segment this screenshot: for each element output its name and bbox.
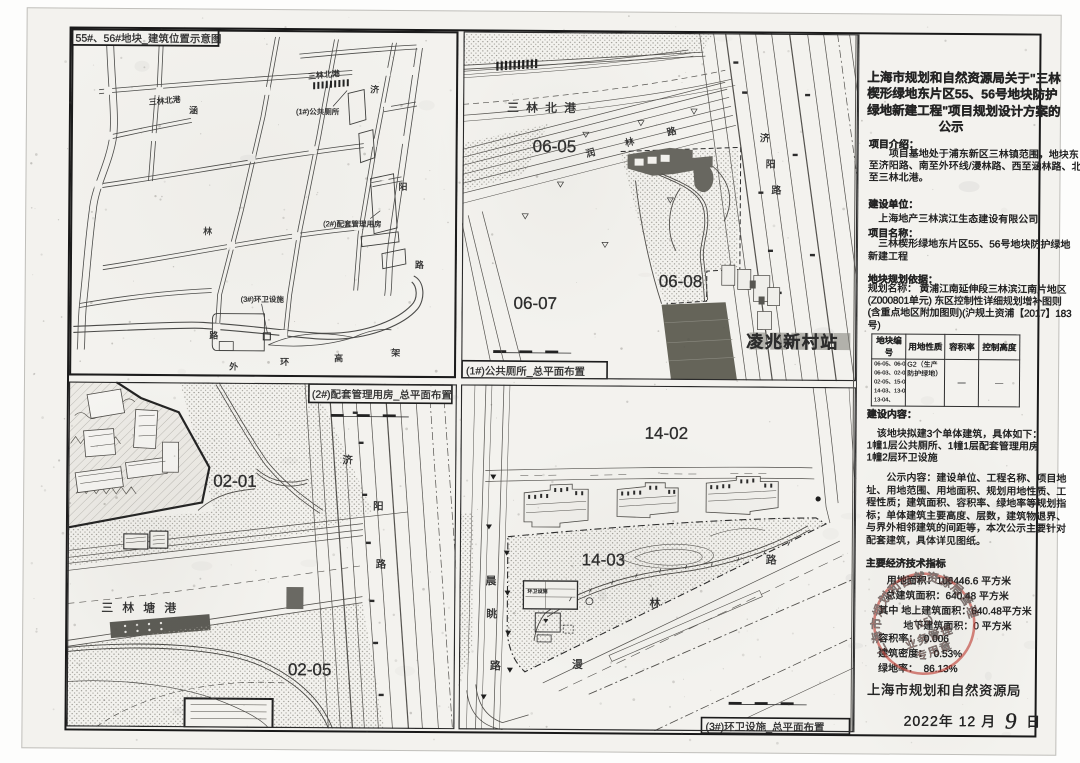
svg-text:路: 路 [771, 184, 781, 197]
svg-text:济: 济 [342, 453, 353, 466]
svg-text:(2#)配套管理用房_总平面布置: (2#)配套管理用房_总平面布置 [312, 388, 452, 402]
svg-text:(1#)公共厕所_总平面布置: (1#)公共厕所_总平面布置 [466, 364, 585, 378]
svg-text:(3#)环卫设施_总平面布置: (3#)环卫设施_总平面布置 [705, 720, 824, 734]
svg-text:阳: 阳 [373, 501, 384, 513]
svg-text:济: 济 [759, 132, 769, 145]
svg-text:凌兆新村站: 凌兆新村站 [746, 331, 839, 352]
svg-text:阳: 阳 [765, 159, 775, 171]
svg-text:路: 路 [375, 558, 386, 571]
